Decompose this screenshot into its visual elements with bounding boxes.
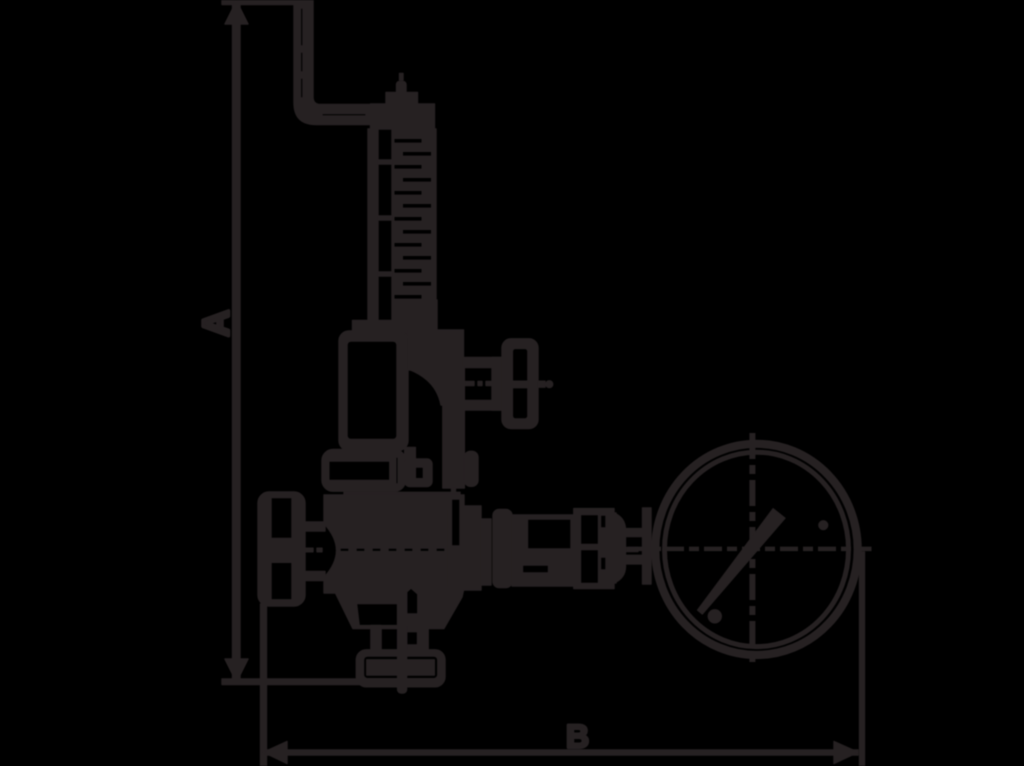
svg-text:A: A bbox=[196, 310, 237, 337]
svg-text:B: B bbox=[566, 718, 589, 754]
